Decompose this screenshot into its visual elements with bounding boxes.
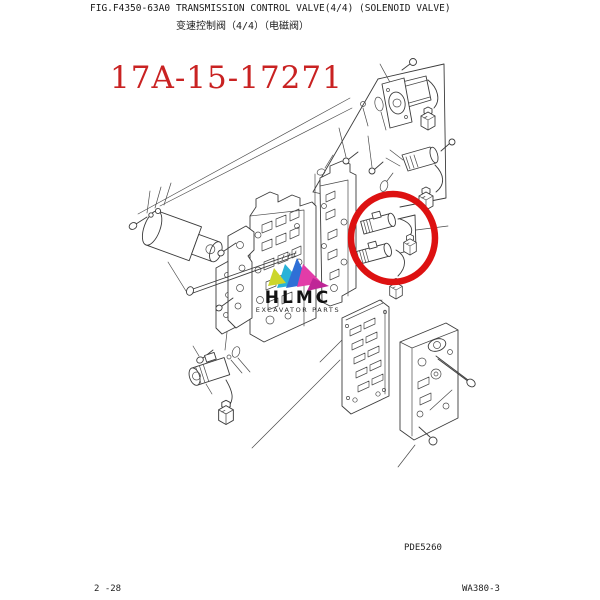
logo-triangles-icon (265, 257, 331, 291)
left-solenoid (128, 183, 227, 291)
top-solenoid (361, 59, 438, 131)
gasket-plate (342, 300, 389, 414)
bottom-solenoid (185, 332, 250, 425)
lower-valve-body (400, 323, 458, 440)
brand-logo: HLMC EXCAVATOR PARTS (254, 257, 342, 314)
parts-catalog-image: FIG.F4350-63A0 TRANSMISSION CONTROL VALV… (0, 0, 600, 600)
logo-tagline: EXCAVATOR PARTS (254, 306, 342, 314)
valve-plate-pair (216, 226, 254, 334)
highlight-circle (351, 194, 435, 282)
logo-name: HLMC (254, 291, 342, 305)
